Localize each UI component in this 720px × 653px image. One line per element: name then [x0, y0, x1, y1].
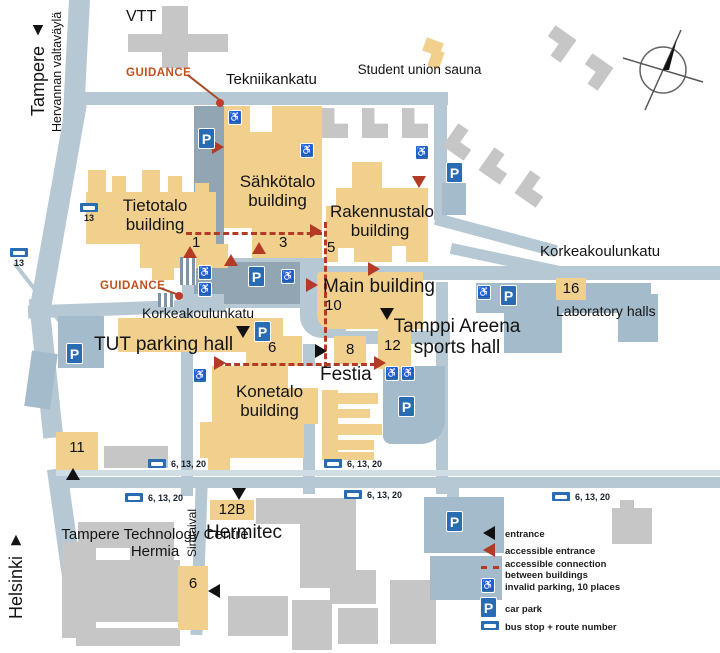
bus-stop-icon: [344, 490, 362, 499]
wheelchair-glyph: ♿: [478, 287, 490, 298]
bus-route-label: 13: [14, 259, 24, 268]
tietotalo-tooth: [88, 170, 106, 196]
wheelchair-glyph: ♿: [402, 368, 414, 379]
sahkotalo-notch: [250, 106, 272, 132]
legend-invalid-parking-label: invalid parking, 10 places: [505, 582, 620, 593]
building-label-main: Main building: [323, 276, 443, 297]
accessible-entrance-icon: [224, 254, 238, 266]
guidance-dot-center: [175, 292, 183, 300]
car-park-icon: P: [248, 266, 265, 287]
housing-block: [322, 108, 348, 138]
building-label-konetalo: Konetalo building: [222, 382, 317, 420]
bus-route-label: 6, 13, 20: [347, 460, 382, 469]
building-number-1: 1: [192, 235, 200, 252]
street-korkeakoulunkatu-east: Korkeakoulunkatu: [540, 244, 660, 261]
bus-route-label: 6, 13, 20: [148, 494, 183, 503]
building-label-rakennustalo: Rakennustalo building: [330, 202, 430, 240]
housing-block: [478, 147, 515, 185]
street-tekniikankatu: Tekniikankatu: [226, 72, 317, 89]
building-number-12: 12: [384, 338, 401, 355]
building-east-of-rakennustalo: [442, 183, 466, 215]
building-number-5: 5: [327, 240, 335, 257]
building-label-tietotalo: Tietotalo building: [96, 196, 214, 234]
konetalo-foot: [208, 458, 230, 470]
rakennustalo-notch: [392, 246, 406, 262]
crosswalk: [180, 257, 196, 285]
legend-entrance-label: entrance: [505, 529, 545, 540]
building-number-3: 3: [279, 235, 287, 252]
car-park-icon: P: [198, 128, 215, 149]
bus-route-label: 6, 13, 20: [171, 460, 206, 469]
bus-route-label: 6, 13, 20: [367, 491, 402, 500]
legend-invalid-parking-icon: ♿: [481, 578, 495, 593]
accessible-parking-icon: ♿: [228, 110, 242, 125]
wheelchair-glyph: ♿: [416, 147, 428, 158]
accessible-entrance-icon: [310, 224, 322, 238]
entrance-icon: [315, 344, 327, 358]
tietotalo-tooth: [142, 170, 160, 196]
rakennustalo-notch: [338, 248, 354, 262]
guidance-dot-north: [216, 99, 224, 107]
tietotalo-tooth: [168, 176, 182, 196]
building-label-sauna: Student union sauna: [352, 62, 487, 77]
accessible-parking-icon: ♿: [198, 282, 212, 297]
festia-spine: [322, 390, 338, 456]
legend-accessible-entrance-icon: [483, 543, 495, 557]
south-building: [612, 508, 652, 544]
road-bottom: [56, 477, 720, 488]
legend-accessible-entrance-label: accessible entrance: [505, 546, 595, 557]
car-park-icon: P: [66, 343, 83, 364]
accessible-entrance-icon: [214, 356, 226, 370]
housing-block: [402, 108, 428, 138]
entrance-icon: [66, 468, 80, 480]
tietotalo-tooth: [195, 183, 209, 197]
wheelchair-glyph: ♿: [199, 284, 211, 295]
car-park-letter: P: [70, 346, 79, 362]
legend-bus-stop-icon: [481, 621, 499, 630]
guidance-label-center: GUIDANCE: [100, 281, 165, 293]
accessible-parking-icon: ♿: [477, 285, 491, 300]
car-park-letter: P: [202, 131, 211, 147]
building-label-hermia: Tampere Technology Centre Hermia: [55, 527, 255, 561]
accessible-entrance-icon: [368, 262, 380, 276]
building-number-16: 16: [556, 281, 586, 298]
housing-block: [576, 53, 613, 91]
housing-block: [539, 25, 576, 63]
konetalo-base: [200, 422, 304, 458]
car-park-icon: P: [446, 162, 463, 183]
street-korkeakoulunkatu-west: Korkeakoulunkatu: [142, 306, 254, 322]
wheelchair-glyph: ♿: [229, 112, 241, 123]
car-park-icon: P: [446, 511, 463, 532]
car-park-icon: P: [398, 396, 415, 417]
bus-stop-icon: [324, 459, 342, 468]
legend-entrance-icon: [483, 526, 495, 540]
guidance-label-north: GUIDANCE: [126, 68, 191, 80]
entrance-icon: [232, 488, 246, 500]
legend-accessible-connection-label-2: between buildings: [505, 570, 588, 581]
accessible-parking-icon: ♿: [385, 366, 399, 381]
building-label-laboratory: Laboratory halls: [556, 304, 676, 320]
legend-accessible-connection-label-1: accessible connection: [505, 559, 606, 570]
tietotalo-foot: [152, 268, 174, 280]
building-label-tut-parking: TUT parking hall: [94, 334, 290, 355]
accessible-parking-icon: ♿: [415, 145, 429, 160]
building-number-12b: 12B: [210, 502, 254, 519]
bus-stop-icon: [10, 248, 28, 257]
wheelchair-glyph: ♿: [301, 145, 313, 156]
hermia-building: [76, 628, 180, 646]
entrance-icon: [208, 584, 220, 598]
compass-icon: [615, 22, 710, 117]
wheelchair-glyph: ♿: [199, 267, 211, 278]
accessible-parking-icon: ♿: [193, 368, 207, 383]
building-label-festia: Festia: [320, 364, 380, 385]
accessible-entrance-icon: [252, 242, 266, 254]
street-hervannan-valtavayla: Hervannan valtaväylä: [50, 4, 64, 140]
housing-block: [514, 170, 551, 208]
building-number-6-south: 6: [178, 576, 208, 593]
wheelchair-glyph: ♿: [282, 271, 294, 282]
car-park-letter: P: [450, 514, 459, 530]
vtt-building-wing: [128, 34, 228, 52]
accessible-entrance-icon: [412, 176, 426, 188]
building-label-tamppi: Tamppi Areena sports hall: [392, 316, 522, 359]
tietotalo-tooth: [112, 176, 126, 196]
bus-stop-icon: [125, 493, 143, 502]
festia-tooth: [338, 424, 382, 435]
road-tekniikankatu: [76, 92, 448, 105]
car-park-letter: P: [450, 165, 459, 181]
campus-map: GUIDANCE GUIDANCE P P P P P P P P ♿ ♿ ♿ …: [0, 0, 720, 653]
rakennustalo-north-stub: [352, 162, 382, 190]
car-park-letter: P: [402, 399, 411, 415]
car-park-letter: P: [252, 269, 261, 285]
building-number-6: 6: [268, 340, 276, 357]
legend-accessible-connection-icon: [481, 566, 499, 569]
building-number-11: 11: [56, 440, 98, 457]
legend-car-park-label: car park: [505, 604, 542, 615]
wheelchair-glyph: ♿: [386, 368, 398, 379]
south-building: [292, 600, 332, 650]
south-building: [338, 608, 378, 644]
festia-tooth: [338, 393, 378, 404]
legend-bus-stop-label: bus stop + route number: [505, 622, 617, 633]
legend-car-park-icon: P: [480, 597, 497, 618]
housing-block: [442, 123, 479, 161]
accessible-parking-icon: ♿: [198, 265, 212, 280]
festia-tooth: [338, 440, 374, 450]
hermitec-building: [330, 570, 376, 604]
building-label-sahkotalo: Sähkötalo building: [230, 172, 325, 210]
car-park-icon: P: [500, 285, 517, 306]
bus-stop-icon: [552, 492, 570, 501]
building-label-vtt: VTT: [126, 8, 156, 26]
south-building: [228, 596, 288, 636]
car-park-letter: P: [504, 288, 513, 304]
road-bottom-upper: [56, 470, 720, 476]
accessible-parking-icon: ♿: [300, 143, 314, 158]
building-number-10: 10: [325, 298, 342, 315]
bus-route-label: 6, 13, 20: [575, 493, 610, 502]
bus-route-label: 13: [84, 214, 94, 223]
accessible-entrance-icon: [306, 278, 318, 292]
direction-tampere: Tampere ▲: [28, 6, 48, 130]
hermia-building: [88, 560, 180, 622]
wheelchair-glyph: ♿: [482, 580, 494, 591]
direction-helsinki: Helsinki ▼: [6, 518, 26, 632]
accessible-parking-icon: ♿: [281, 269, 295, 284]
wheelchair-glyph: ♿: [194, 370, 206, 381]
bus-stop-icon: [148, 459, 166, 468]
building-number-8: 8: [346, 342, 354, 359]
accessible-parking-icon: ♿: [401, 366, 415, 381]
festia-tooth: [338, 409, 370, 418]
car-park-letter: P: [484, 600, 493, 616]
housing-block: [362, 108, 388, 138]
